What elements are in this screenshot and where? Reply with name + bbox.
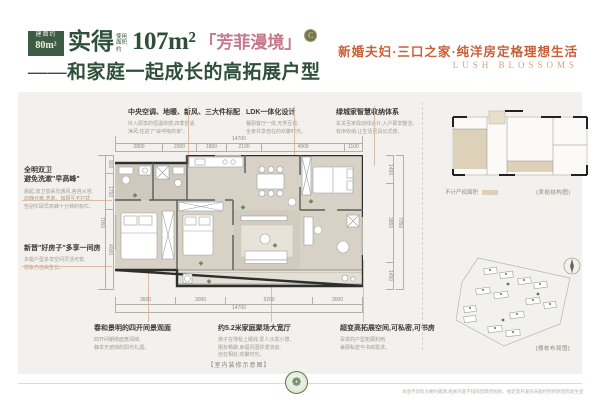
dim-value: 3000 (175, 297, 225, 305)
dim-value: 900 (106, 155, 114, 173)
legend-swatch (482, 190, 498, 195)
content-panel: 中央空调、地暖、新风、三大件标配 拎入即享的恒温体感,四季舒适, 净风,住进了"… (18, 92, 582, 374)
floorplan-poster: 建面约 80m² 实得 使用面积约 107m² 「芳菲漫境」 C ——和家庭一起… (0, 0, 600, 412)
dim-value: 1750 (106, 173, 114, 209)
callout-title: 超变高拓展空间,可私密,可书房 (340, 324, 450, 333)
dim-value: 7050 (98, 155, 106, 290)
dim-chain-top-total: 14700 (115, 136, 363, 144)
callout-desc: 四开间朝南面宽阔绰, 静享无遮挡的阳光礼遇。 (94, 337, 204, 352)
page-subtitle: ——和家庭一起成长的高拓展户型 (28, 57, 321, 84)
dim-value: 1800 (196, 144, 226, 152)
dim-value: 14700 (115, 305, 363, 313)
plan-caption: 【室内装修示意图】 (115, 360, 363, 369)
callout-title: 绿城家智慧收纳体系 (336, 108, 428, 117)
dim-value: 14700 (115, 136, 363, 144)
dim-value: 1450 (386, 155, 394, 183)
site-plan-label: [楼栋布局图] (536, 344, 570, 352)
title-smallnote: 使用面积约 (116, 34, 130, 53)
callout-bottom-1: 春和景明的四开间景观面 四开间朝南面宽阔绰, 静享无遮挡的阳光礼遇。 (94, 324, 204, 352)
brand-emblem-icon: ❁ (285, 371, 308, 394)
dim-chain-right-total: 7050 (396, 155, 404, 290)
leader-line (363, 260, 364, 322)
dim-chain-left-total: 7050 (98, 155, 106, 290)
callout-bottom-2: 约5.2米家庭聚场大宽厅 孩子在地毯上嬉戏,爱人沙发小憩, 朋友畅聊,幸福氛围弥… (218, 324, 328, 360)
callout-top-3: 绿城家智慧收纳体系 玄关至家政动线设计,入户即享整洁, 有序收纳,让生活更具仪式… (336, 108, 428, 136)
dim-value: 2800 (115, 144, 162, 152)
callout-title: 中央空调、地暖、新风、三大件标配 (128, 108, 240, 117)
dim-value: 3600 (115, 297, 175, 305)
page-title: 实得 使用面积约 107m² 「芳菲漫境」 C (68, 24, 317, 56)
callout-top-1: 中央空调、地暖、新风、三大件标配 拎入即享的恒温体感,四季舒适, 净风,住进了"… (128, 108, 240, 136)
callout-desc: 百变的户型拓展利用, 兼顾私密与书房需求。 (340, 337, 450, 352)
area-badge-value: 80m² (28, 40, 64, 52)
callout-desc: 孩子在地毯上嬉戏,爱人沙发小憩, 朋友畅聊,幸福氛围弥漫流动, 自在相处,欢聚时… (218, 337, 328, 360)
grade-medal-icon: C (304, 29, 317, 42)
footer-disclaimer: 本宣传资料为要约邀请,相关内容不排除因政府规划、规定及开发商未能控制的原因而发生… (402, 389, 584, 395)
dim-value: 1450 (386, 262, 394, 290)
legend-label: 不计产权面积 (445, 188, 478, 196)
dim-chain-bottom-total: 14700 (115, 305, 363, 313)
section-divider (422, 102, 423, 350)
callout-title: 约5.2米家庭聚场大宽厅 (218, 324, 328, 333)
title-prefix: 实得 (68, 28, 114, 56)
callout-desc: 玄关至家政动线设计,入户即享整洁, 有序收纳,让生活更具仪式感。 (336, 121, 428, 136)
floor-plan (115, 155, 363, 290)
dim-value: 1100 (344, 144, 363, 152)
dim-value: 5200 (225, 297, 312, 305)
dim-value: 2100 (226, 144, 261, 152)
tagline: 新婚夫妇·三口之家·纯洋房定格理想生活 (338, 41, 578, 60)
leader-line (374, 106, 375, 166)
original-structure-plan (445, 105, 595, 185)
area-badge-label: 建面约 (28, 31, 64, 40)
dim-value: 2000 (162, 144, 196, 152)
original-structure-label: (原始结构图) (536, 188, 571, 196)
dim-value: 7050 (396, 155, 404, 290)
site-plan (448, 252, 588, 352)
dim-chain-left-segments: 900 1750 4000 (106, 155, 114, 290)
unit-name: 「芳菲漫境」 (199, 30, 301, 56)
dim-chain-top-segments: 2800 2000 1800 2100 4900 1100 (115, 144, 363, 152)
dim-chain-bottom-segments: 3600 3000 5200 3000 (115, 297, 363, 305)
dim-value: 3850 (386, 183, 394, 262)
dim-value: 4900 (261, 144, 344, 152)
dim-value: 3000 (312, 297, 363, 305)
callout-bottom-3: 超变高拓展空间,可私密,可书房 百变的户型拓展利用, 兼顾私密与书房需求。 (340, 324, 450, 352)
area-badge: 建面约 80m² (28, 31, 64, 56)
title-area-value: 107m² (132, 28, 195, 56)
dim-chain-right-segments: 1450 3850 1450 (386, 155, 394, 290)
compass-icon (564, 258, 580, 274)
dim-value: 4000 (106, 209, 114, 290)
legend-row: 不计产权面积 (445, 188, 498, 196)
callout-desc: 拎入即享的恒温体感,四季舒适, 净风,住进了"会呼吸的家"。 (128, 121, 240, 136)
callout-title: 春和景明的四开间景观面 (94, 324, 204, 333)
tagline-en: LUSH BLOSSOMS (453, 60, 578, 70)
